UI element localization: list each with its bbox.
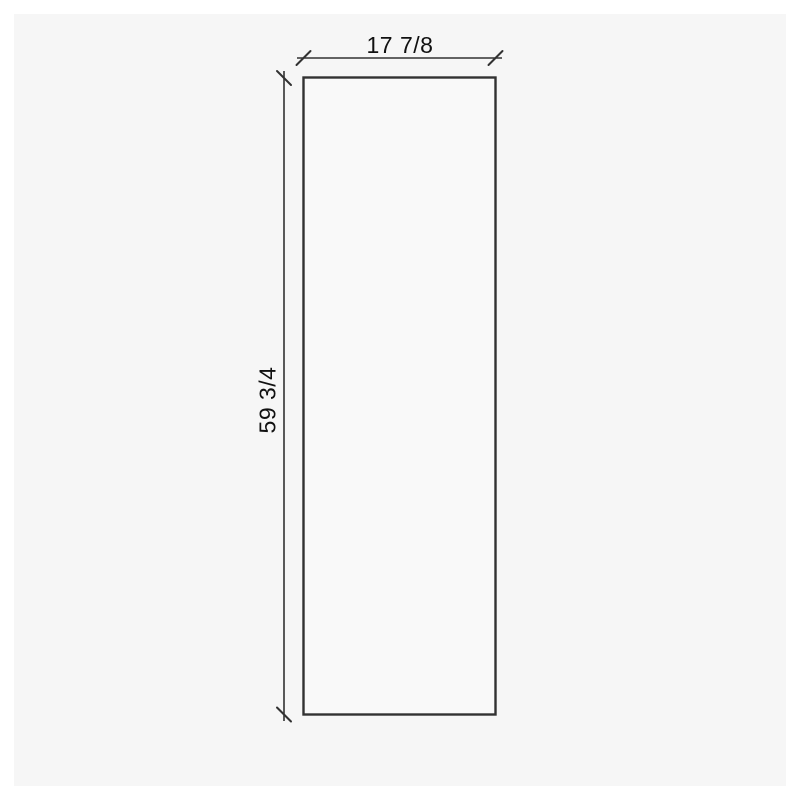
height-dimension-label: 59 3/4	[257, 367, 280, 434]
dimension-drawing	[0, 0, 800, 800]
drawing-page: 17 7/8 59 3/4	[0, 0, 800, 800]
width-dimension-label: 17 7/8	[300, 34, 500, 57]
panel-outline	[304, 78, 496, 715]
